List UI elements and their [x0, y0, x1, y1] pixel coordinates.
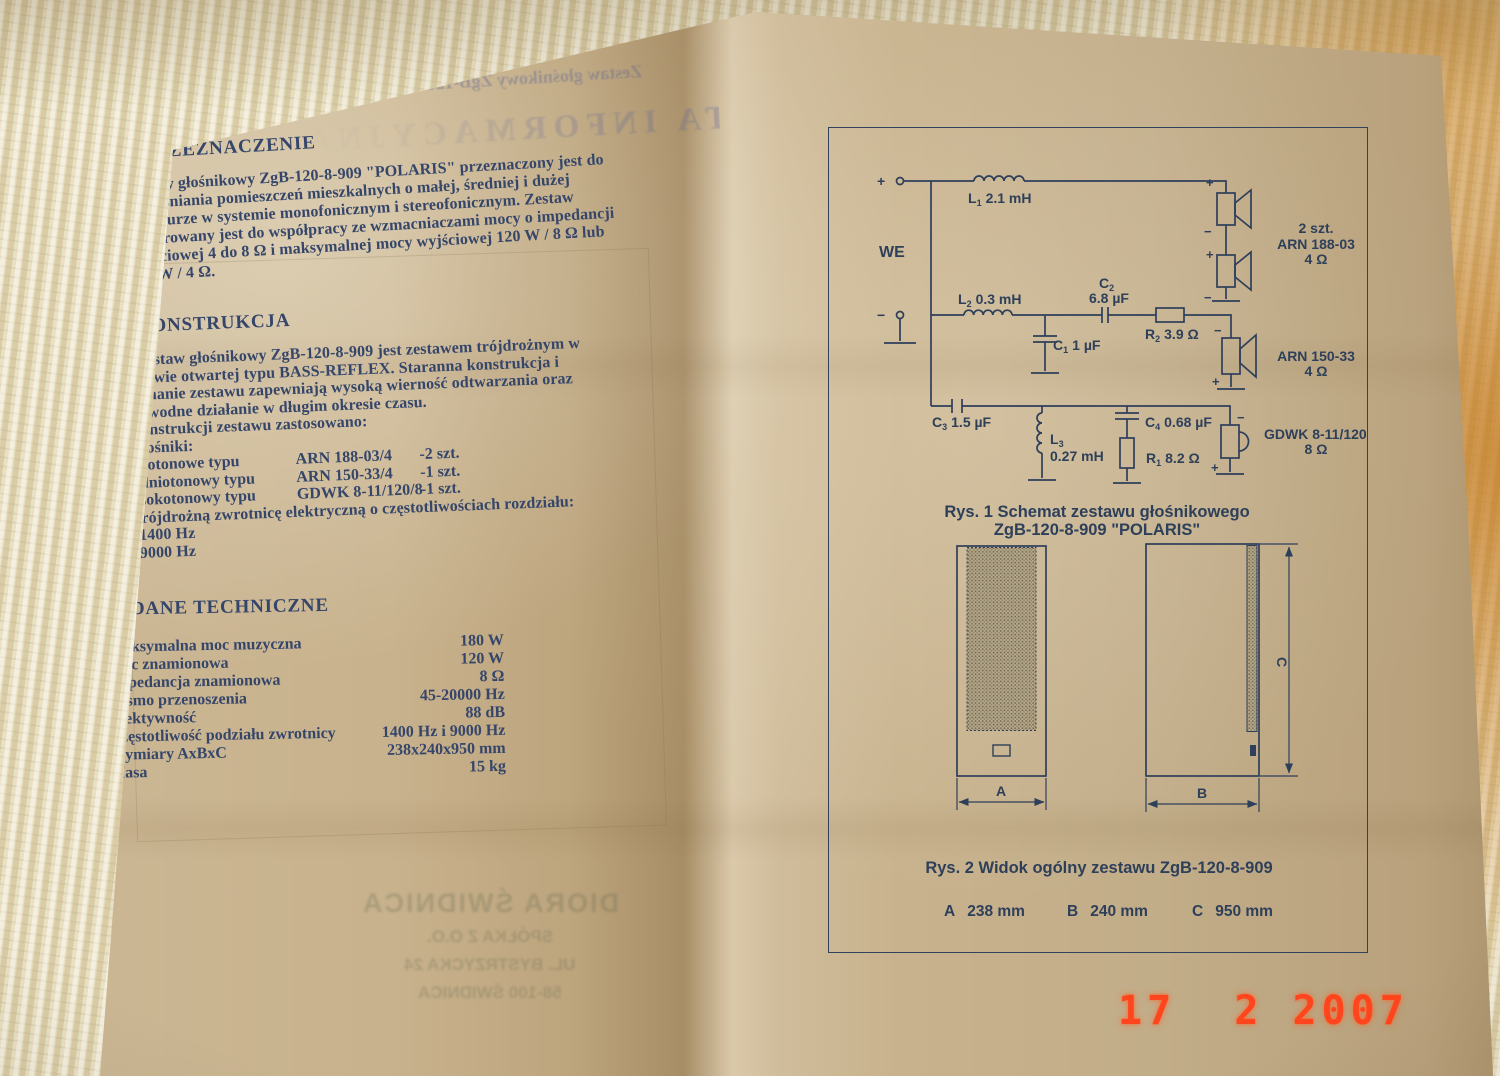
spec-label: Wymiary AxBxC	[110, 745, 227, 765]
inductor-l2-label: L20.3 mH	[958, 291, 1022, 309]
dim-a-letter: A	[996, 783, 1006, 799]
woofer2-plus: +	[1206, 247, 1214, 262]
input-plus-terminal	[897, 178, 904, 185]
dim-a-value: A238 mm	[944, 903, 1025, 920]
photo-of-datasheet: Zestaw głośnikowy ZgB-120-8-909 "POLARIS…	[0, 0, 1500, 1076]
tweeter-model-label: GDWK 8-11/120	[1264, 426, 1367, 442]
spec-value: 15 kg	[303, 758, 506, 780]
capacitor-c1-label: C11 µF	[1053, 337, 1101, 355]
tweeter-plus: +	[1211, 460, 1219, 475]
ghost-footer-address: DIORA ŚWIDNICA SPÓŁKA Z O.O. UL. BYSTRZY…	[320, 888, 660, 1003]
woofer-2-cone	[1235, 252, 1251, 290]
tweeter-impedance-label: 8 Ω	[1305, 441, 1328, 457]
resistor-r1	[1120, 438, 1134, 468]
woofer1-plus: +	[1206, 175, 1214, 190]
tweeter-dome	[1239, 432, 1249, 451]
figure1-caption-line2: ZgB-120-8-909 "POLARIS"	[994, 521, 1200, 539]
woofer-rail	[904, 181, 1227, 193]
midrange-ground	[1217, 374, 1245, 389]
woofer-impedance-label: 4 Ω	[1305, 251, 1328, 267]
cabinet-grille	[967, 548, 1036, 731]
input-minus-terminal	[897, 312, 904, 319]
capacitor-c3-label: C31.5 µF	[932, 414, 992, 432]
midrange-plus: +	[1212, 374, 1220, 389]
ghost-city: 58-100 ŚWIDNICA	[418, 983, 562, 1003]
cabinet-drawing	[957, 544, 1298, 812]
inductor-l3-value: 0.27 mH	[1050, 448, 1104, 464]
figures-frame: + − WE L12.1 mH L20.3 mH C2 6.8 µF R23.9…	[828, 127, 1368, 953]
woofer-2-symbol	[1217, 255, 1235, 287]
cabinet-side-view	[1146, 544, 1259, 776]
figure2-caption: Rys. 2 Widok ogólny zestawu ZgB-120-8-90…	[926, 859, 1273, 877]
folded-datasheet-paper: Zestaw głośnikowy ZgB-120-8-909 "POLARIS…	[0, 0, 1500, 1076]
midrange-model-label: ARN 150-33	[1277, 348, 1355, 364]
resistor-r1-label: R18.2 Ω	[1146, 450, 1200, 468]
speaker-qty: -1 szt.	[421, 480, 462, 499]
input-ground	[884, 319, 916, 343]
plus-mark: +	[877, 173, 885, 189]
midrange-symbol	[1222, 338, 1240, 374]
woofer1-minus: −	[1204, 224, 1212, 239]
tweeter-symbol	[1221, 425, 1239, 458]
schematic-and-cabinet-svg: + − WE L12.1 mH L20.3 mH C2 6.8 µF R23.9…	[827, 126, 1367, 952]
woofer2-minus: −	[1204, 290, 1212, 305]
ghost-company-form: SPÓŁKA Z O.O.	[427, 927, 553, 947]
speaker-qty: -2 szt.	[419, 445, 460, 464]
dim-c-value: C950 mm	[1192, 903, 1273, 920]
cabinet-side-grille-edge	[1247, 546, 1257, 732]
schematic-labels: + − WE L12.1 mH L20.3 mH C2 6.8 µF R23.9…	[877, 173, 1367, 539]
speaker-qty: -1 szt.	[420, 462, 461, 481]
capacitor-c2-value: 6.8 µF	[1089, 290, 1129, 306]
inductor-l1	[974, 176, 1024, 181]
capacitor-c2	[1102, 307, 1108, 323]
section-konstrukcja: II. KONSTRUKCJA Zestaw głośnikowy ZgB-12…	[108, 299, 588, 563]
input-we-label: WE	[879, 244, 905, 261]
dim-b-value: B240 mm	[1067, 903, 1148, 920]
resistor-r2-label: R23.9 Ω	[1145, 326, 1199, 344]
woofer-1-symbol	[1217, 193, 1235, 225]
midrange-minus: −	[1214, 323, 1222, 338]
woofer-qty-label: 2 szt.	[1299, 220, 1334, 236]
inductor-l2	[964, 311, 1012, 316]
inductor-l3-ref: L3	[1050, 431, 1064, 449]
inductor-l3	[1037, 413, 1042, 453]
bass-reflex-port	[993, 745, 1010, 756]
woofer-ground	[1212, 287, 1240, 301]
capacitor-c3	[952, 399, 962, 413]
dim-b-letter: B	[1197, 785, 1207, 801]
camera-date-stamp: 17 2 2007	[1118, 988, 1409, 1034]
terminal-cup	[1250, 745, 1256, 756]
dim-c-letter: C	[1274, 657, 1290, 667]
midrange-cone	[1240, 335, 1256, 377]
minus-mark: −	[877, 307, 885, 323]
figure1-caption-line1: Rys. 1 Schemat zestawu głośnikowego	[945, 503, 1250, 521]
woofer-1-cone	[1235, 190, 1251, 228]
midrange-impedance-label: 4 Ω	[1305, 363, 1328, 379]
inductor-l1-label: L12.1 mH	[968, 190, 1032, 208]
ghost-street: UL. BYSTRZYCKA 24	[404, 955, 575, 975]
resistor-r2	[1156, 308, 1184, 322]
woofer-model-label: ARN 188-03	[1277, 236, 1355, 252]
tweeter-minus: −	[1237, 410, 1245, 425]
capacitor-c4-label: C40.68 µF	[1145, 414, 1212, 432]
capacitor-c4-shunt	[1113, 406, 1141, 483]
crossover-schematic	[884, 176, 1256, 483]
tweeter-ground	[1216, 458, 1244, 474]
ghost-company: DIORA ŚWIDNICA	[361, 888, 619, 919]
